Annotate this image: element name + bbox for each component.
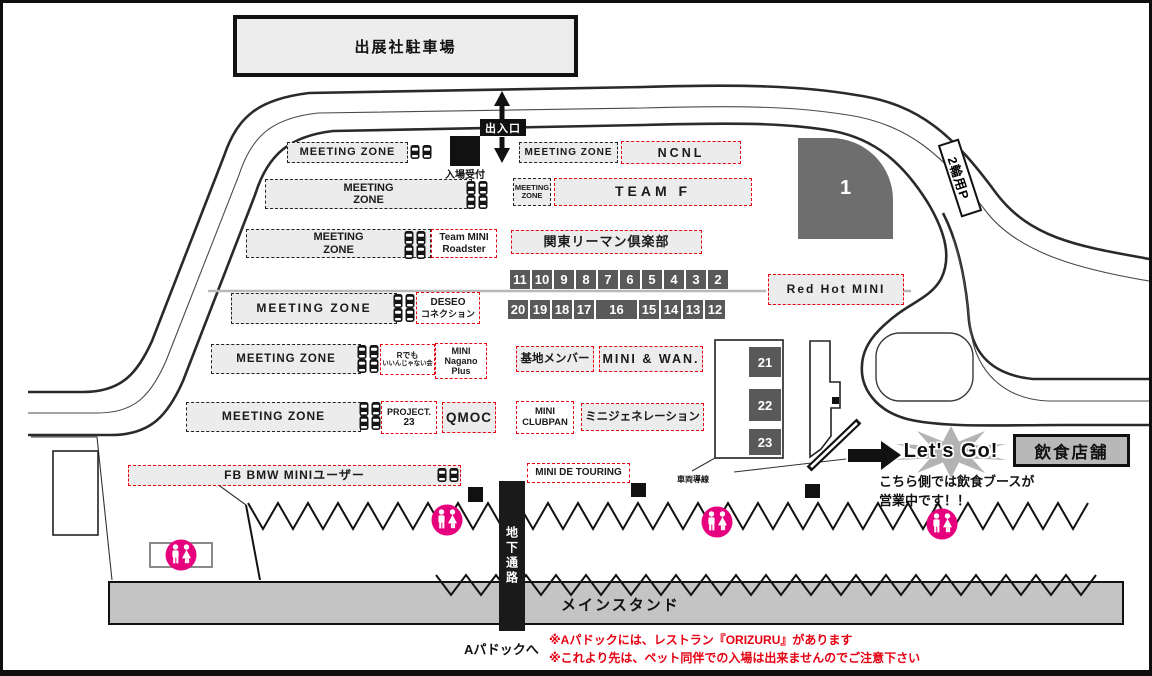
pit-number: 19	[530, 300, 550, 319]
club-label: CLUBPAN	[522, 418, 568, 429]
pit-number: 3	[686, 270, 706, 289]
club-label: DESEO	[430, 297, 465, 308]
meeting-zone-text: MEETING ZONE	[236, 353, 336, 366]
exit-road-centerline	[953, 238, 1152, 401]
pit-number: 15	[639, 300, 659, 319]
note-no-pets: ※これより先は、ペット同伴での入場は出来ませんのでご注意下さい	[549, 649, 920, 666]
club-mini-nagano-plus: MININaganoPlus	[435, 343, 487, 379]
fence-marker	[468, 487, 483, 502]
vehicle-guide-line-segment	[692, 458, 715, 471]
meeting-zone-text: ZONE	[323, 244, 354, 256]
fence-marker	[631, 483, 646, 497]
pit-number: 4	[664, 270, 684, 289]
club-label: Red Hot MINI	[787, 283, 886, 296]
club-qmoc: QMOC	[442, 402, 496, 433]
club-label: MINI	[535, 407, 555, 418]
club-mini-de-touring: MINI DE TOURING	[527, 463, 630, 483]
pit-number-23: 23	[749, 429, 781, 455]
pit-number: 17	[574, 300, 594, 319]
meeting-zone-text: ZONE	[353, 194, 384, 206]
meeting-zone-row6: MEETING ZONE	[186, 402, 361, 432]
food-shops-label: 飲食店舗	[1035, 439, 1109, 463]
club-label: Nagano	[444, 356, 477, 366]
pit-number: 12	[705, 300, 725, 319]
meeting-zone-text: MEETING ZONE	[300, 146, 396, 158]
go-arrow-icon	[848, 441, 901, 470]
pit-number: 16	[596, 300, 637, 319]
pit-number: 10	[532, 270, 552, 289]
club-label: 23	[403, 417, 414, 428]
club-ncnl: NCNL	[621, 141, 741, 164]
meeting-zone-row5: MEETING ZONE	[211, 344, 361, 374]
pit-number: 23	[758, 435, 772, 450]
club-label: NCNL	[658, 146, 705, 160]
pit-number: 20	[508, 300, 528, 319]
meeting-zone-text: MEETING	[343, 182, 393, 194]
underground-passage-bar: 地下通路	[499, 481, 525, 631]
pit-number: 14	[661, 300, 681, 319]
club-label: ミニジェネレーション	[585, 411, 700, 424]
club-mini-generation: ミニジェネレーション	[581, 403, 704, 431]
pit-number: 9	[554, 270, 574, 289]
entrance-label-text: 出入口	[485, 120, 521, 136]
lets-go-callout: Let's Go!	[896, 440, 1006, 463]
fence-left-diagonal	[246, 505, 260, 580]
club-label: MINI & WAN.	[603, 352, 700, 366]
club-kanto-riiman: 関東リーマン倶楽部	[511, 230, 702, 254]
club-team-mini-roadster: Team MINIRoadster	[431, 229, 497, 258]
pit-number: 21	[758, 355, 772, 370]
vehicle-guide-line-label: 車両導線	[677, 474, 709, 485]
meeting-zone-row2: MEETINGZONE	[265, 179, 472, 209]
club-label: Plus	[451, 366, 470, 376]
club-project-23: PROJECT.23	[381, 401, 437, 434]
turnaround-loop-inner	[876, 333, 973, 401]
pit-number-row-top: 11 10 9 8 7 6 5 4 3 2	[510, 270, 728, 289]
club-label: PROJECT.	[387, 407, 431, 417]
exhibitor-parking-label: 出展社駐車場	[354, 36, 456, 57]
restroom-icon	[927, 509, 958, 540]
club-label: TEAM F	[615, 184, 691, 200]
pit-number-21: 21	[749, 347, 781, 377]
note-restaurant: ※Aパドックには、レストラン『ORIZURU』があります	[549, 631, 852, 648]
pit-number: 11	[510, 270, 530, 289]
meeting-zone-text: MEETING ZONE	[524, 147, 612, 158]
meeting-zone-row1-right: MEETING ZONE	[519, 142, 618, 163]
club-label: 基地メンバー	[521, 353, 590, 366]
meeting-zone-text: MEETING	[313, 231, 363, 243]
pit-number: 2	[708, 270, 728, 289]
club-label: Roadster	[442, 244, 485, 255]
pit-number-22: 22	[749, 389, 781, 421]
venue-map: 出展社駐車場 出入口 入場受付 2輪用P 1 MEETING ZONE MEET…	[0, 0, 1152, 676]
club-label: 関東リーマン倶楽部	[543, 235, 669, 250]
club-kichi-member: 基地メンバー	[516, 346, 594, 372]
vehicle-guide-line-segment	[734, 459, 846, 472]
pit-number: 8	[576, 270, 596, 289]
pit-number: 5	[642, 270, 662, 289]
meeting-zone-text: ZONE	[522, 192, 543, 200]
club-label: FB BMW MINIユーザー	[224, 469, 365, 482]
pit-number: 22	[758, 398, 772, 413]
area-1-number: 1	[840, 177, 851, 200]
club-label: Team MINI	[439, 232, 488, 243]
meeting-zone-row3: MEETINGZONE	[246, 229, 431, 258]
club-mini-clubpan: MINICLUBPAN	[516, 401, 574, 434]
pit-number: 18	[552, 300, 572, 319]
food-info-line1: こちら側では飲食ブースが	[879, 471, 1034, 490]
pit-number: 6	[620, 270, 640, 289]
club-red-hot-mini: Red Hot MINI	[768, 274, 904, 305]
pit-number: 7	[598, 270, 618, 289]
club-label: MINI DE TOURING	[535, 467, 621, 478]
club-mini-and-wan: MINI & WAN.	[599, 346, 703, 372]
club-label: いいんじゃない会	[382, 360, 432, 367]
club-deseo: DESEOコネクション	[416, 292, 480, 324]
map-linework	[3, 3, 1152, 676]
restroom-icon	[432, 505, 463, 536]
meeting-zone-text: MEETING ZONE	[256, 302, 371, 315]
club-label: コネクション	[421, 309, 475, 319]
tower-marker	[832, 397, 839, 404]
entrance-label: 出入口	[480, 119, 526, 136]
meeting-zone-row4: MEETING ZONE	[231, 293, 397, 324]
food-shops-block: 飲食店舗	[1013, 434, 1130, 467]
club-fb-bmw-mini-user: FB BMW MINIユーザー	[128, 465, 461, 486]
meeting-zone-row1-left: MEETING ZONE	[287, 142, 408, 163]
underground-passage-text: 地下通路	[504, 526, 521, 586]
exit-road-top-edge	[943, 213, 1152, 379]
restroom-icon	[166, 540, 197, 571]
lets-go-text: Let's Go!	[904, 440, 999, 462]
main-stand-label: メインスタンド	[561, 594, 680, 615]
meeting-zone-text: MEETING ZONE	[222, 410, 325, 423]
club-label: MINI	[452, 346, 471, 356]
club-r-demo-iinjanai: Rでもいいんじゃない会	[380, 344, 435, 375]
pit-number: 13	[683, 300, 703, 319]
restroom-icon	[702, 507, 733, 538]
pit-number-row-bottom: 20 19 18 17 16 15 14 13 12	[508, 300, 725, 319]
fence-marker	[805, 484, 820, 498]
fence-stand-zigzag	[436, 575, 1096, 595]
reception-booth	[450, 136, 480, 166]
exhibitor-parking-area: 出展社駐車場	[233, 15, 578, 77]
building-outline	[53, 451, 98, 535]
club-label: QMOC	[446, 410, 492, 425]
to-a-paddock-label: Aパドックへ	[464, 639, 539, 658]
food-info-line2: 営業中です！！	[879, 490, 970, 509]
meeting-zone-row2-small: MEETINGZONE	[513, 178, 551, 206]
club-team-f: TEAM F	[554, 178, 752, 206]
